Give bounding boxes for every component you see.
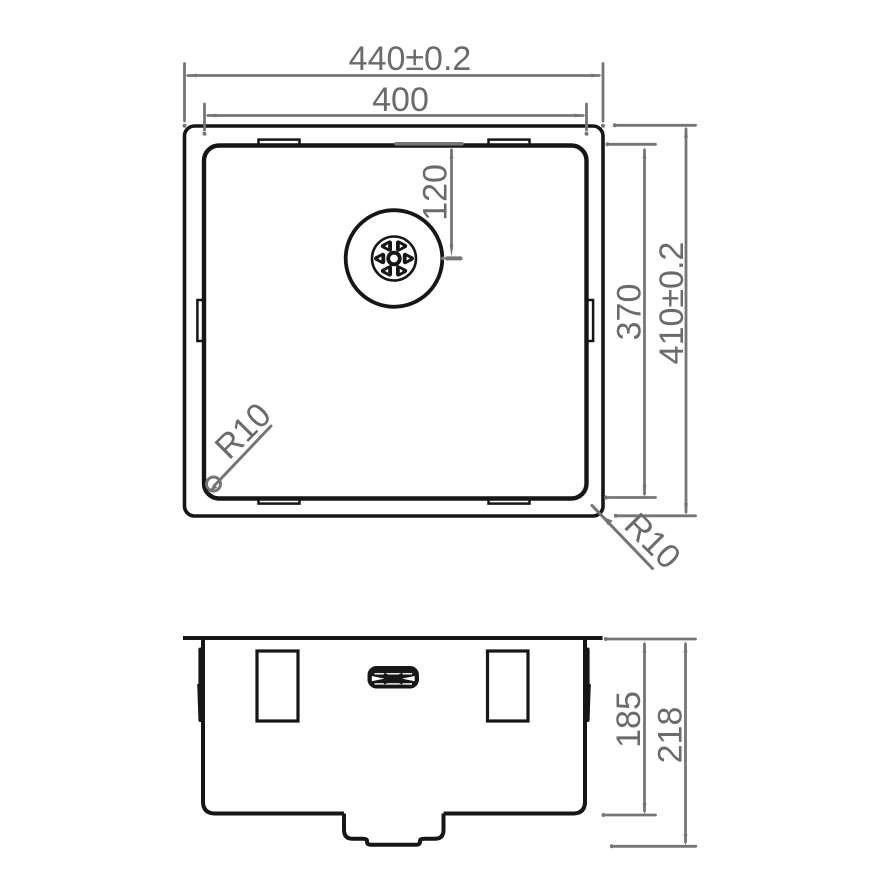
svg-text:370: 370 <box>611 284 649 341</box>
svg-text:400: 400 <box>372 81 429 119</box>
svg-text:440±0.2: 440±0.2 <box>349 40 472 78</box>
svg-text:120: 120 <box>417 164 455 221</box>
svg-text:218: 218 <box>652 707 690 764</box>
svg-text:410±0.2: 410±0.2 <box>653 242 691 365</box>
svg-text:185: 185 <box>610 691 648 748</box>
